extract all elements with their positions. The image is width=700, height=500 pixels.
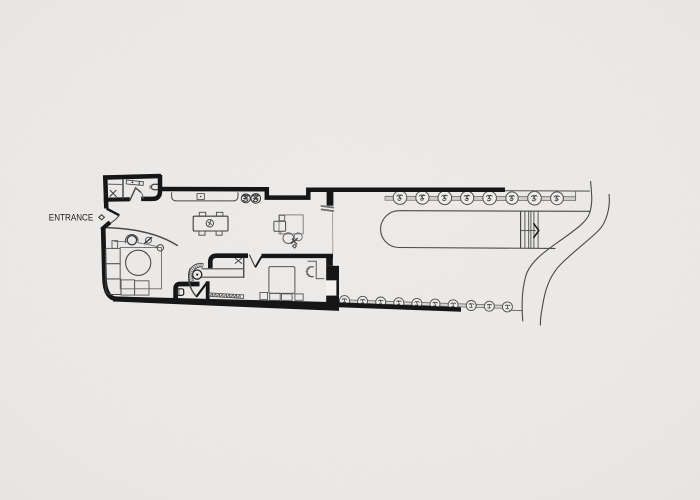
svg-text:ENTRANCE: ENTRANCE xyxy=(49,213,94,224)
